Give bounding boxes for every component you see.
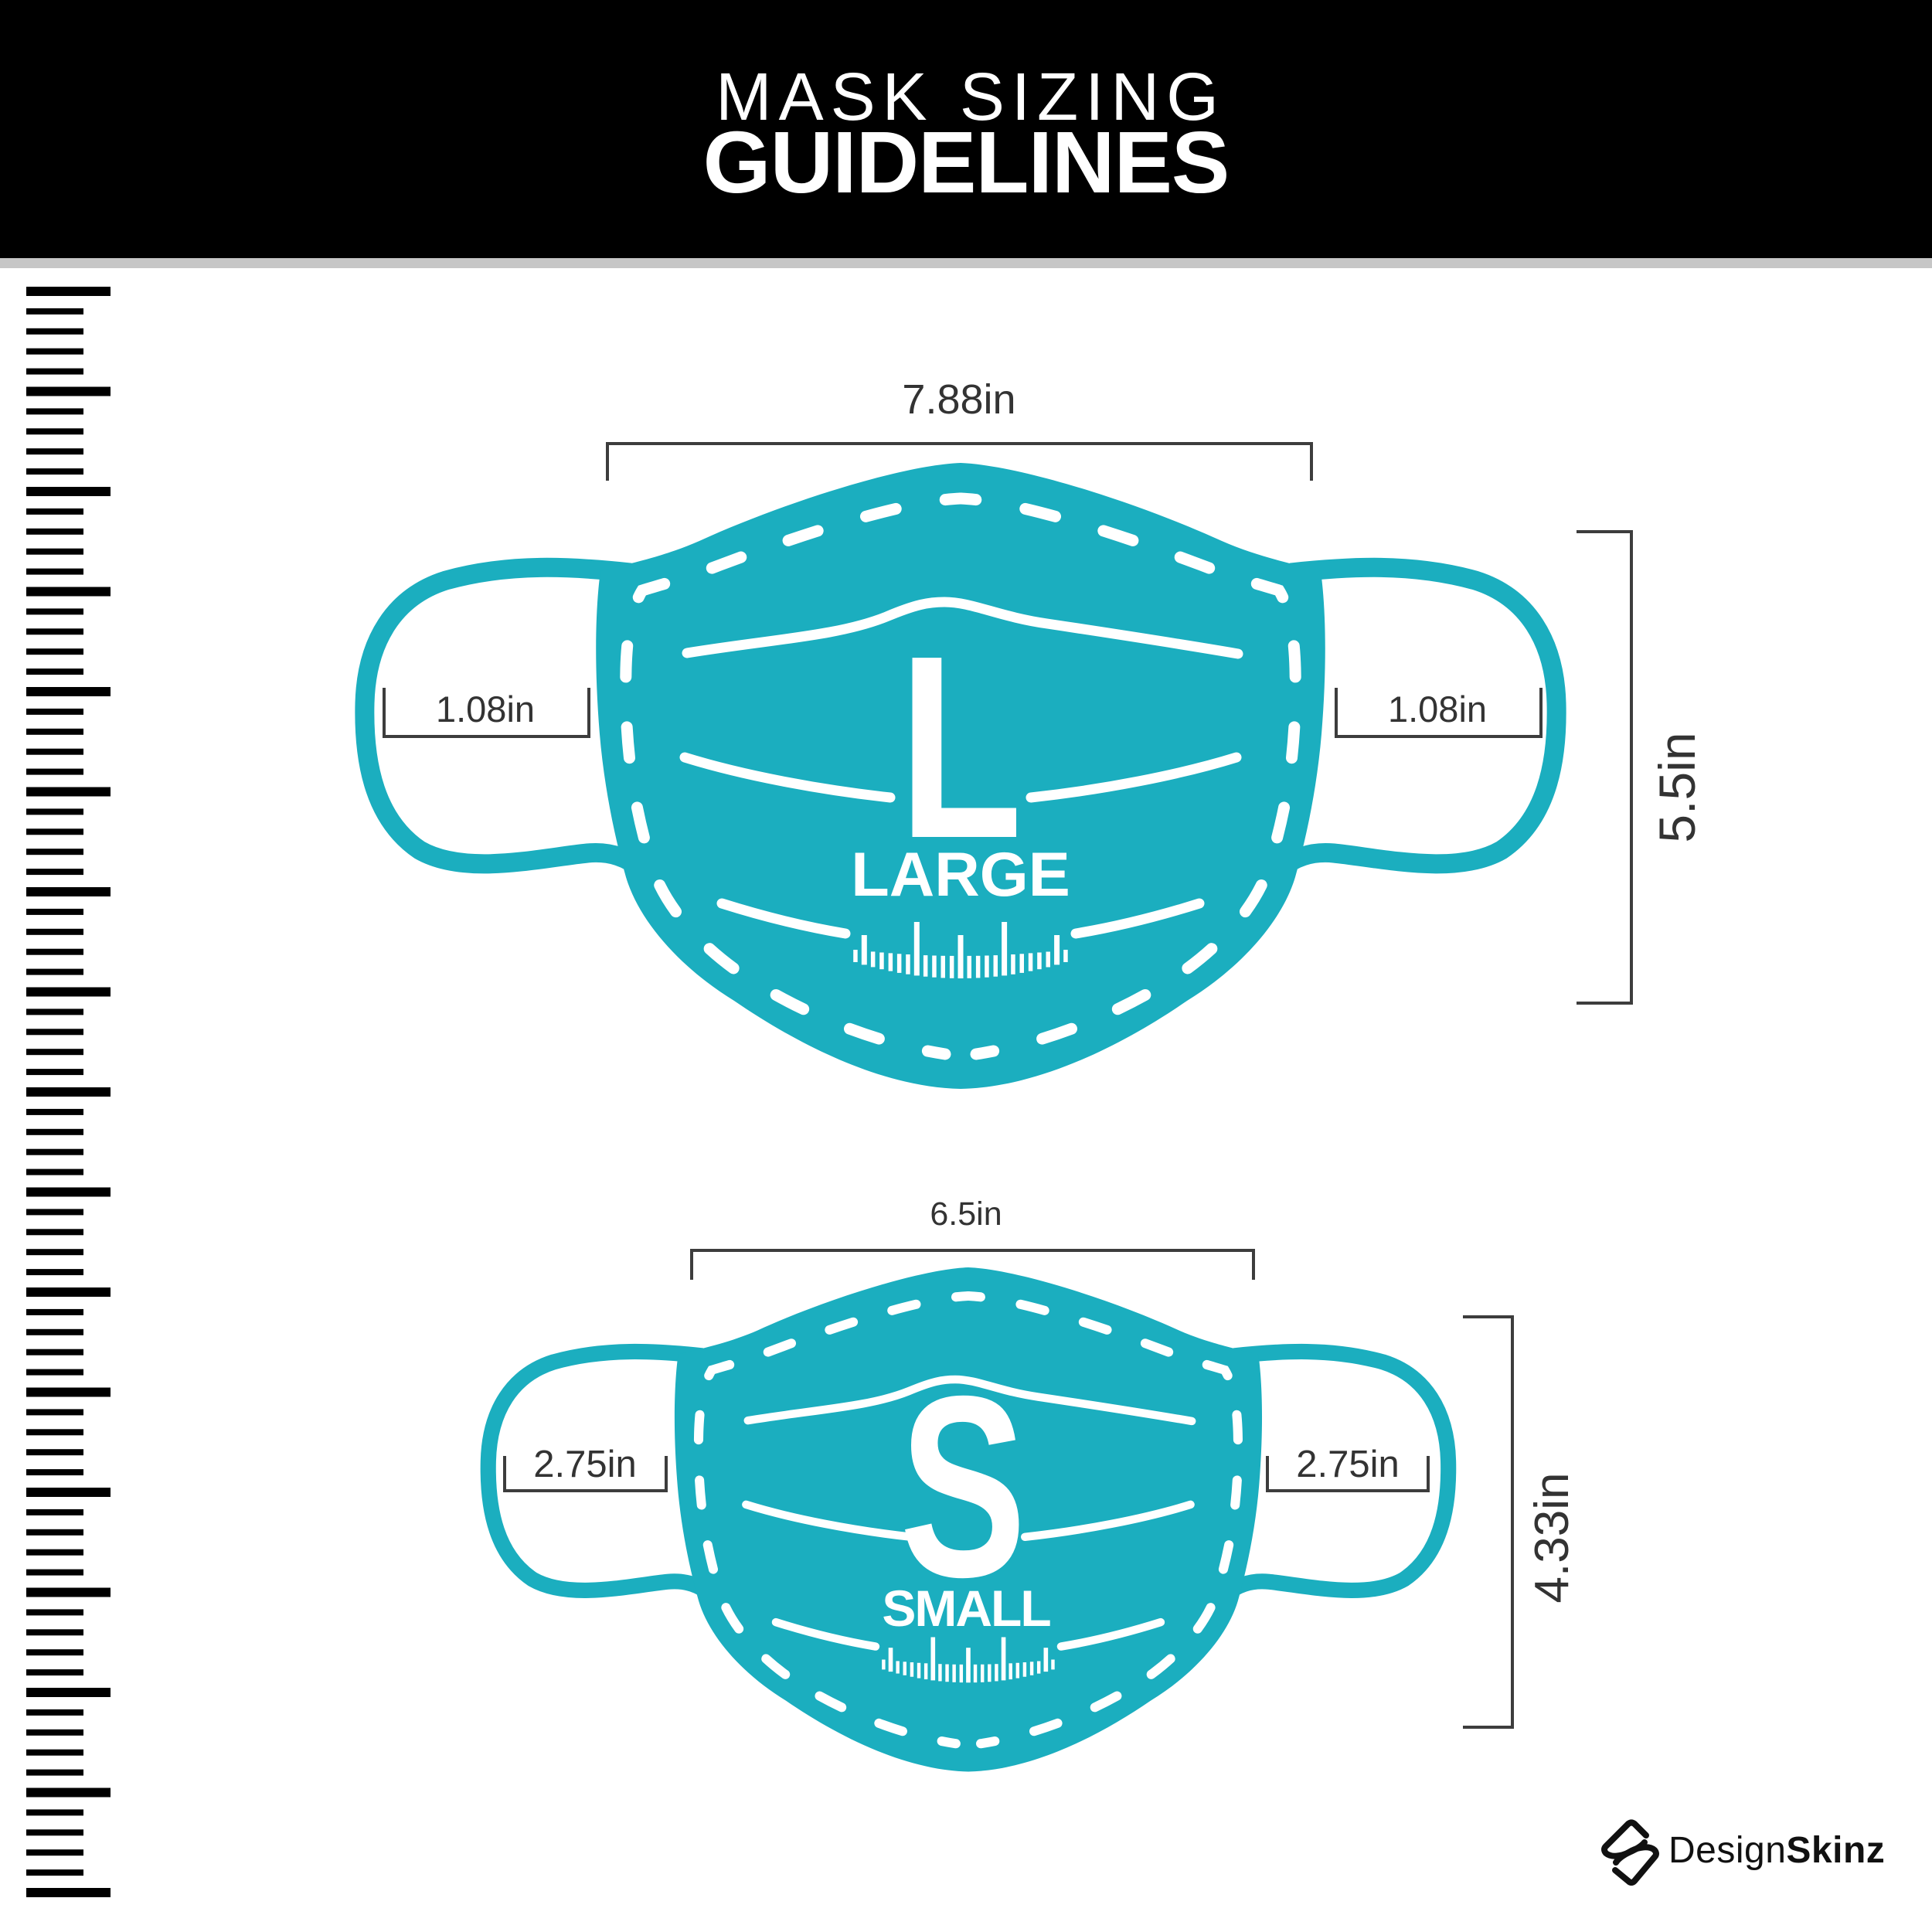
svg-text:LARGE: LARGE — [851, 840, 1070, 910]
svg-text:SMALL: SMALL — [882, 1580, 1050, 1637]
svg-text:2.75in: 2.75in — [533, 1444, 637, 1485]
svg-text:GUIDELINES: GUIDELINES — [703, 114, 1230, 211]
svg-text:5.5in: 5.5in — [1648, 732, 1706, 842]
svg-text:4.33in: 4.33in — [1526, 1473, 1579, 1604]
svg-text:2.75in: 2.75in — [1296, 1444, 1400, 1485]
svg-text:1.08in: 1.08in — [1388, 689, 1487, 730]
svg-text:7.88in: 7.88in — [902, 376, 1015, 423]
svg-text:6.5in: 6.5in — [930, 1196, 1002, 1233]
svg-text:1.08in: 1.08in — [436, 689, 535, 730]
svg-text:DesignSkinz: DesignSkinz — [1668, 1830, 1885, 1871]
